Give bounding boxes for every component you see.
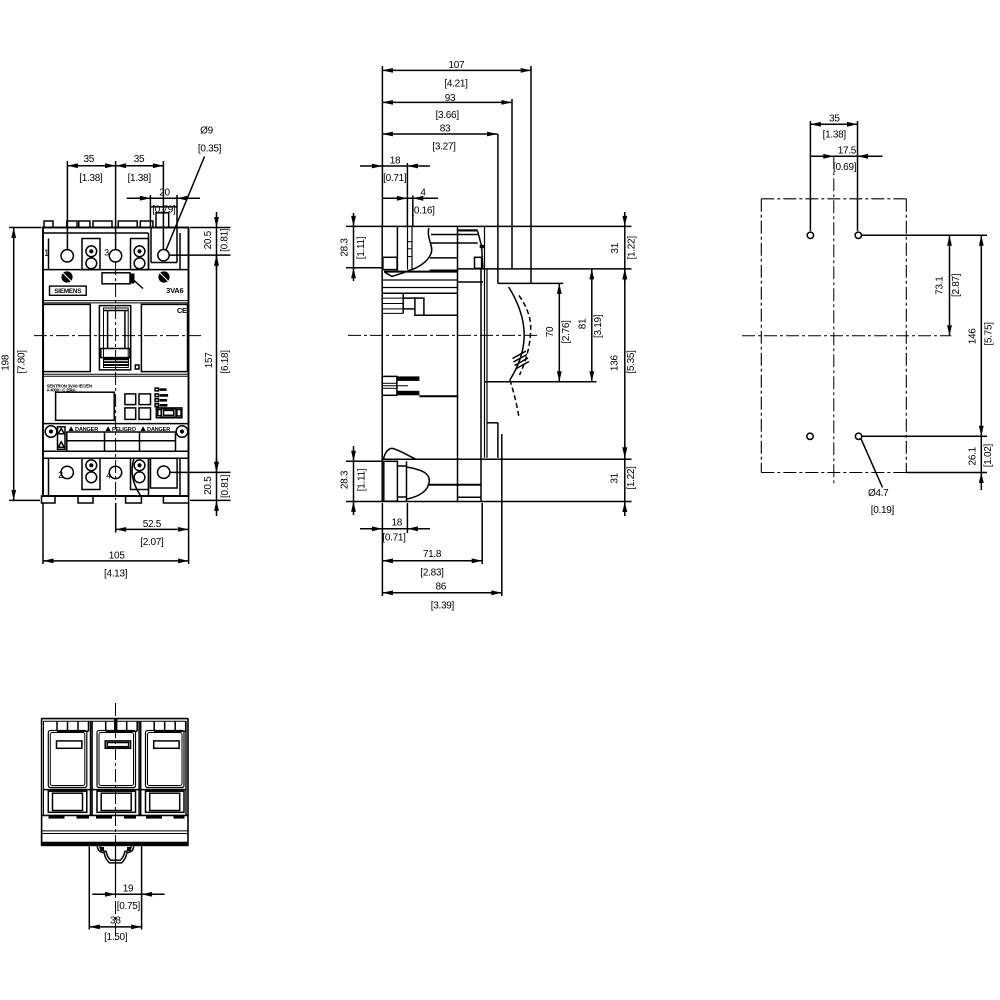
svg-text:20.5: 20.5 bbox=[203, 476, 214, 495]
svg-text:[1.38]: [1.38] bbox=[79, 173, 103, 184]
svg-text:[1.11]: [1.11] bbox=[356, 236, 367, 259]
svg-text:[5.75]: [5.75] bbox=[984, 322, 995, 346]
svg-text:3: 3 bbox=[104, 248, 109, 258]
svg-text:[0.79]: [0.79] bbox=[152, 205, 176, 216]
svg-text:18: 18 bbox=[392, 517, 403, 528]
svg-text:[0.81]: [0.81] bbox=[220, 228, 231, 252]
svg-text:28.3: 28.3 bbox=[340, 470, 351, 489]
svg-text:31: 31 bbox=[610, 472, 621, 483]
svg-text:[2.87]: [2.87] bbox=[951, 273, 962, 297]
svg-text:2: 2 bbox=[58, 470, 63, 480]
svg-text:83: 83 bbox=[440, 123, 451, 134]
svg-text:SIEMENS: SIEMENS bbox=[54, 288, 81, 295]
svg-text:28.3: 28.3 bbox=[340, 238, 351, 257]
svg-text:73.1: 73.1 bbox=[934, 276, 945, 295]
svg-text:Ø9: Ø9 bbox=[200, 126, 213, 137]
svg-text:1: 1 bbox=[44, 248, 49, 258]
svg-text:146: 146 bbox=[968, 328, 979, 345]
svg-text:[0.81]: [0.81] bbox=[220, 474, 231, 498]
svg-text:[2.07]: [2.07] bbox=[140, 537, 164, 548]
svg-text:[1.50]: [1.50] bbox=[104, 932, 128, 943]
svg-text:4: 4 bbox=[106, 471, 111, 481]
svg-text:31: 31 bbox=[610, 242, 621, 253]
svg-text:[1.11]: [1.11] bbox=[356, 468, 367, 491]
svg-text:35: 35 bbox=[84, 154, 95, 165]
svg-text:[0.35]: [0.35] bbox=[198, 144, 222, 155]
svg-text:107: 107 bbox=[449, 60, 466, 71]
svg-text:[4.13]: [4.13] bbox=[104, 568, 128, 579]
svg-text:35: 35 bbox=[829, 113, 840, 124]
svg-text:[1.02]: [1.02] bbox=[983, 443, 994, 467]
svg-text:4: 4 bbox=[420, 188, 426, 199]
svg-text:[1.22]: [1.22] bbox=[626, 466, 637, 490]
svg-text:19: 19 bbox=[123, 884, 134, 895]
svg-text:[2.76]: [2.76] bbox=[561, 320, 572, 344]
svg-text:18: 18 bbox=[390, 156, 401, 167]
svg-text:3VA6: 3VA6 bbox=[166, 286, 183, 295]
svg-text:136: 136 bbox=[610, 355, 621, 372]
svg-text:[3.19]: [3.19] bbox=[593, 314, 604, 338]
svg-text:[6.18]: [6.18] bbox=[220, 350, 231, 374]
svg-text:70: 70 bbox=[545, 326, 556, 337]
svg-text:93: 93 bbox=[445, 93, 456, 104]
svg-text:Ø4.7: Ø4.7 bbox=[868, 488, 889, 499]
svg-text:CE: CE bbox=[177, 306, 187, 315]
svg-text:17.5: 17.5 bbox=[838, 145, 857, 156]
svg-text:[4.21]: [4.21] bbox=[444, 78, 468, 89]
svg-text:[5.35]: [5.35] bbox=[626, 350, 637, 374]
svg-text:26.1: 26.1 bbox=[968, 446, 979, 465]
svg-text:35: 35 bbox=[134, 154, 145, 165]
svg-text:[3.66]: [3.66] bbox=[436, 110, 460, 121]
svg-text:105: 105 bbox=[109, 550, 126, 561]
svg-text:[0.69]: [0.69] bbox=[833, 162, 857, 173]
svg-text:[2.83]: [2.83] bbox=[420, 568, 444, 579]
svg-text:20.5: 20.5 bbox=[203, 230, 214, 249]
svg-text:86: 86 bbox=[436, 581, 447, 592]
svg-text:71.8: 71.8 bbox=[423, 549, 442, 560]
svg-text:[7.80]: [7.80] bbox=[16, 350, 27, 374]
svg-text:[1.38]: [1.38] bbox=[823, 129, 847, 140]
svg-text:198: 198 bbox=[1, 354, 12, 371]
svg-text:20: 20 bbox=[159, 188, 170, 199]
svg-text:[3.27]: [3.27] bbox=[432, 141, 456, 152]
svg-text:[3.39]: [3.39] bbox=[431, 601, 455, 612]
svg-text:52.5: 52.5 bbox=[143, 519, 162, 530]
svg-text:[0.71]: [0.71] bbox=[382, 533, 406, 544]
svg-text:38: 38 bbox=[110, 916, 121, 927]
svg-text:81: 81 bbox=[578, 318, 589, 329]
svg-text:[1.38]: [1.38] bbox=[128, 173, 152, 184]
svg-text:[0.75]: [0.75] bbox=[117, 901, 141, 912]
svg-text:157: 157 bbox=[204, 352, 215, 369]
svg-text:[0.16]: [0.16] bbox=[411, 206, 435, 217]
svg-text:[0.19]: [0.19] bbox=[871, 505, 895, 516]
svg-text:[0.71]: [0.71] bbox=[383, 173, 407, 184]
svg-text:[1.22]: [1.22] bbox=[626, 236, 637, 260]
